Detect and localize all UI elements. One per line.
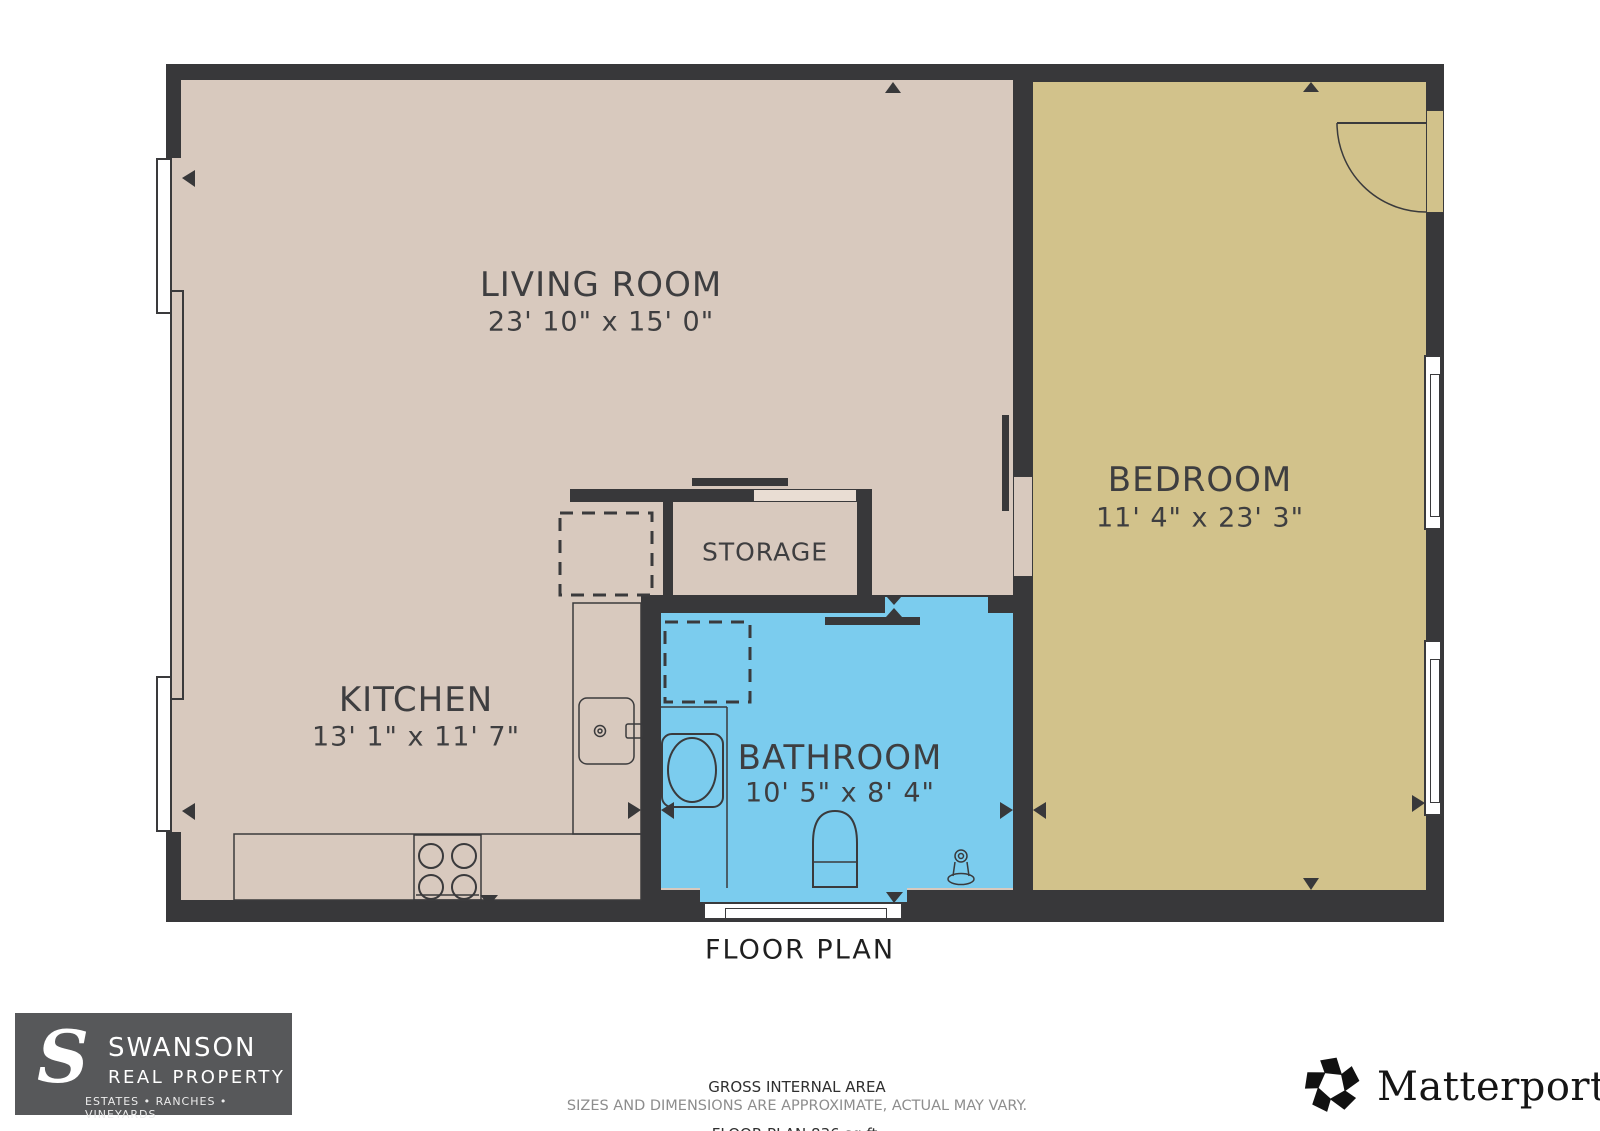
floor-plan-page: LIVING ROOM 23' 10" x 15' 0" KITCHEN 13'… [0,0,1600,1131]
bedroom-pocket-door-panel [1002,415,1009,511]
agency-initial-glyph: S [37,1021,89,1093]
disclaimer-text: SIZES AND DIMENSIONS ARE APPROXIMATE, AC… [567,1098,1027,1114]
bathroom-window-recess [700,888,907,902]
storage-label: STORAGE [702,538,828,567]
gross-internal-area-line: GROSS INTERNAL AREA [708,1080,885,1096]
storage-left-wall [663,502,673,603]
kitchen-bathroom-wall [641,603,661,900]
bedroom-window-upper [1424,355,1442,530]
window-glass [1430,659,1440,803]
storage-right-wall [857,489,872,613]
bedroom-window-lower [1424,640,1442,816]
kitchen-label: KITCHEN [339,680,493,720]
storage-sliding-door-track [692,478,788,486]
page-title: FLOOR PLAN [705,935,895,966]
bathroom-sliding-door-track [825,617,920,625]
agency-logo: S SWANSON REAL PROPERTY ESTATES • RANCHE… [15,1013,292,1115]
bathroom-label: BATHROOM [738,738,943,778]
agency-name: SWANSON [108,1033,256,1063]
left-wall-glass-panel [170,290,184,700]
bedroom-dimensions: 11' 4" x 23' 3" [1096,503,1304,534]
kitchen-floor-extension [181,890,641,900]
matterport-logo: Matterport® [1301,1052,1600,1118]
bathroom-doorway-opening [885,597,988,613]
bedroom-doorway-opening [1013,476,1033,577]
matterport-wordmark-text: Matterport [1377,1064,1600,1110]
matterport-pinwheel-icon [1301,1054,1363,1116]
living-room-label: LIVING ROOM [480,265,722,305]
agency-tagline: ESTATES • RANCHES • VINEYARDS [85,1095,292,1121]
matterport-wordmark: Matterport® [1377,1061,1600,1110]
storage-sliding-door [753,489,857,502]
agency-division: REAL PROPERTY [108,1067,285,1088]
bathroom-dimensions: 10' 5" x 8' 4" [745,778,935,809]
bathroom-window [703,902,903,920]
window-glass [725,908,887,919]
floor-plan-area-line: FLOOR PLAN 836 sq.ft. [708,1127,885,1131]
kitchen-window [156,676,172,832]
window-glass [1430,374,1440,517]
bedroom-label: BEDROOM [1108,460,1292,500]
living-room-dimensions: 23' 10" x 15' 0" [488,307,714,338]
kitchen-dimensions: 13' 1" x 11' 7" [312,722,520,753]
area-summary: GROSS INTERNAL AREA FLOOR PLAN 836 sq.ft… [708,1049,885,1131]
bedroom-entry-door-recess [1426,110,1444,213]
